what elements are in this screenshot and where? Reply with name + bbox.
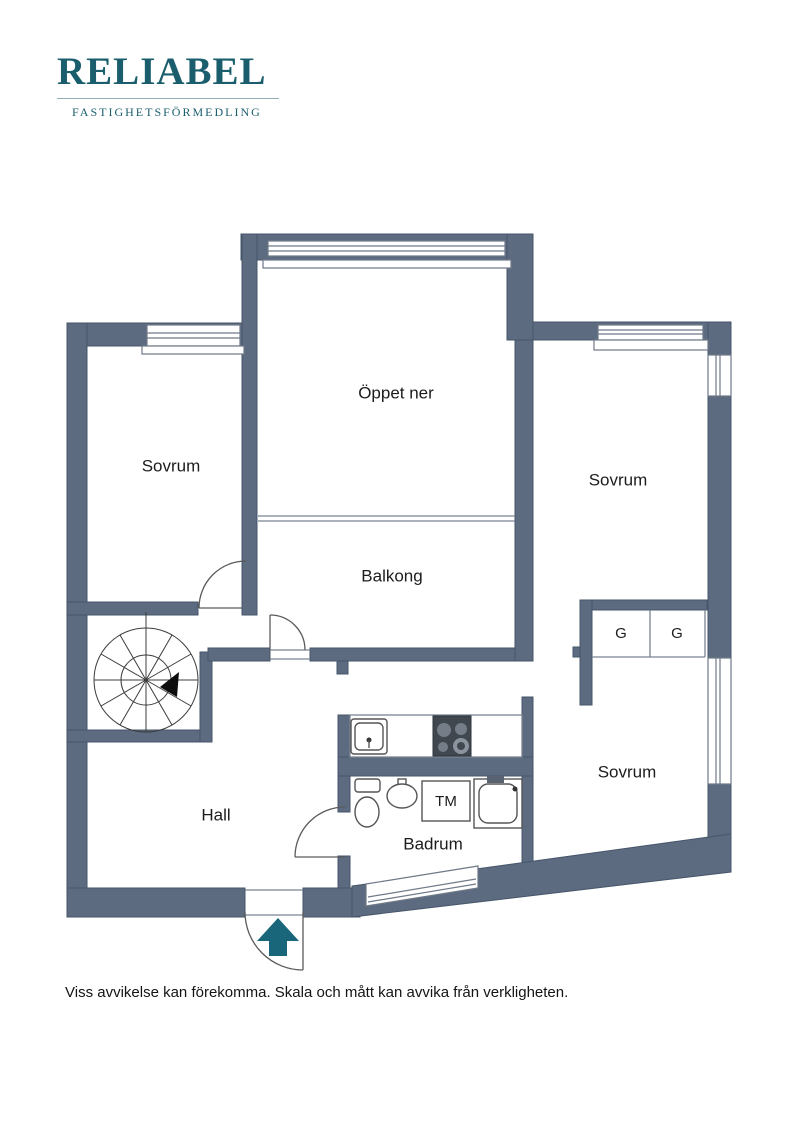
label-wardrobe-right: G — [671, 625, 683, 642]
window-right-bedroom — [594, 325, 708, 350]
door-bathroom — [295, 807, 345, 857]
wash-basin — [387, 779, 417, 808]
label-sovrum-right: Sovrum — [589, 470, 648, 489]
floor-plan: Öppet ner Sovrum Sovrum Balkong Sovrum H… — [0, 0, 800, 1131]
label-balkong: Balkong — [361, 566, 422, 585]
window-right-small — [708, 355, 731, 396]
label-hall: Hall — [201, 805, 230, 824]
label-sovrum-left: Sovrum — [142, 456, 201, 475]
label-sovrum-bottom: Sovrum — [598, 762, 657, 781]
shower — [474, 776, 522, 828]
spiral-staircase — [94, 612, 198, 732]
window-right-long — [708, 658, 731, 784]
room-labels: Öppet ner Sovrum Sovrum Balkong Sovrum H… — [142, 383, 683, 853]
door-left-bedroom — [199, 561, 246, 608]
window-left-bedroom — [142, 325, 244, 354]
kitchen-sink — [351, 719, 387, 754]
window-top-open-area — [263, 241, 511, 268]
label-washing-machine: TM — [435, 793, 457, 810]
interior-lines — [258, 516, 705, 657]
label-wardrobe-left: G — [615, 625, 627, 642]
stove — [433, 716, 471, 756]
label-badrum: Badrum — [403, 834, 463, 853]
entrance-arrow — [257, 918, 299, 956]
kitchen — [350, 715, 522, 757]
door-balcony — [270, 615, 310, 659]
disclaimer-text: Viss avvikelse kan förekomma. Skala och … — [65, 984, 568, 1001]
toilet — [355, 779, 380, 827]
label-oppet-ner: Öppet ner — [358, 383, 434, 402]
